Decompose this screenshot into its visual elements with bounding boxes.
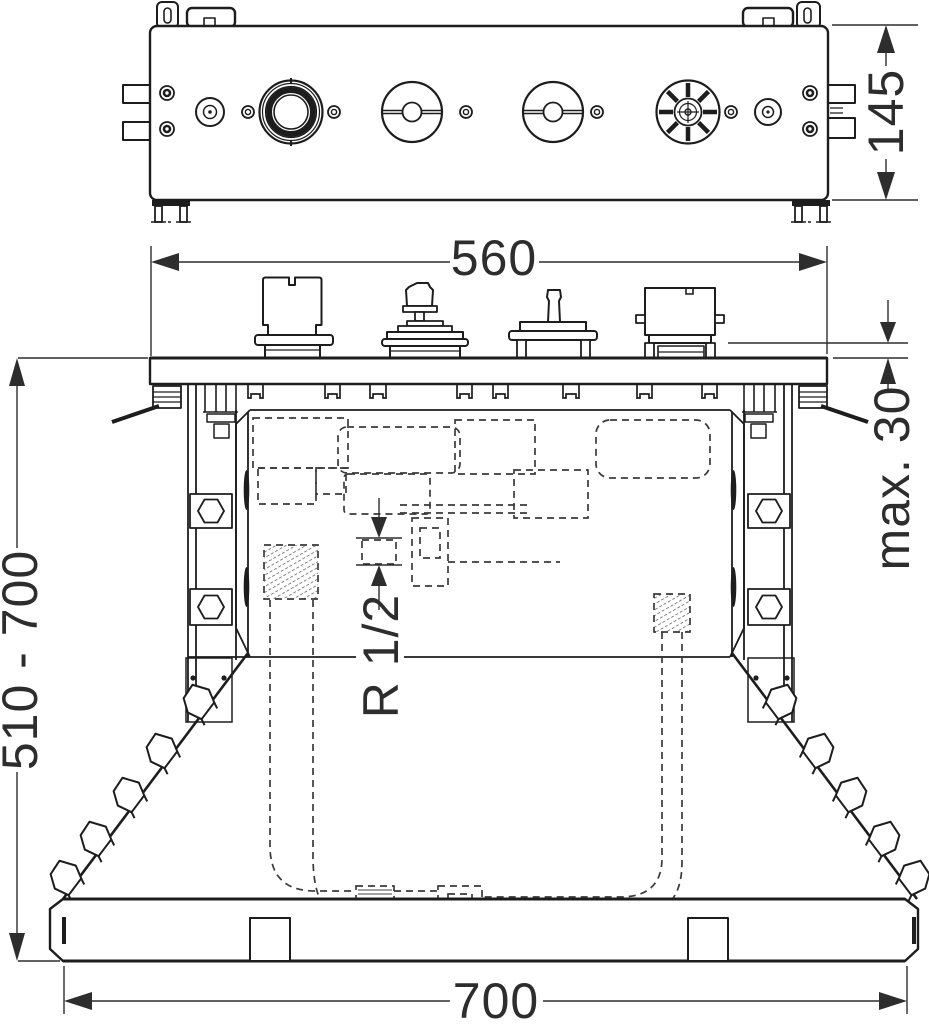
mounting-rail [150,358,827,384]
valve-port-2 [523,82,583,142]
mounting-tabs [157,2,820,28]
pilot-port-right [755,99,781,125]
installation-drawing: 145 560 [0,0,929,1024]
dimension-560: 560 [151,230,827,356]
fixture-box-right [636,288,724,358]
technical-drawing-page: 145 560 [0,0,929,1024]
base-plate [50,899,918,961]
pilot-port-left [196,98,224,126]
support-rail-left [186,384,249,722]
dim-560-label: 560 [451,230,537,286]
housing-feet [151,200,831,222]
dim-510-700-label: 510 - 700 [0,550,48,770]
valve-port-1 [382,82,442,142]
support-rail-right [731,384,794,722]
rail-brackets [248,384,717,398]
slope-clips-left [44,680,223,901]
dim-145-label: 145 [858,69,914,155]
dim-700-label: 700 [453,973,539,1024]
thread-block-right [654,594,690,632]
fixture-handle-left [255,278,333,359]
rail-clamp-right [799,386,868,422]
supply-pipes [270,600,682,942]
fixture-stem [509,290,597,358]
thermostat-rosette [657,81,720,144]
dimension-145: 145 [832,25,918,200]
fixture-cartridge [382,283,468,358]
spout-port [260,78,323,146]
rail-clamp-left [112,386,181,422]
slope-clips-right [757,680,929,901]
housing-body [150,26,828,200]
dim-max30-label: max. 30 [864,386,920,571]
front-view [123,2,855,222]
section-view: 560 [0,230,929,1024]
dimension-700: 700 [64,966,907,1024]
dim-r12-label: R 1/2 [353,594,409,719]
internal-valve-bodies [253,418,710,632]
thread-block-left [264,545,318,599]
dimension-r12: R 1/2 [353,498,409,718]
